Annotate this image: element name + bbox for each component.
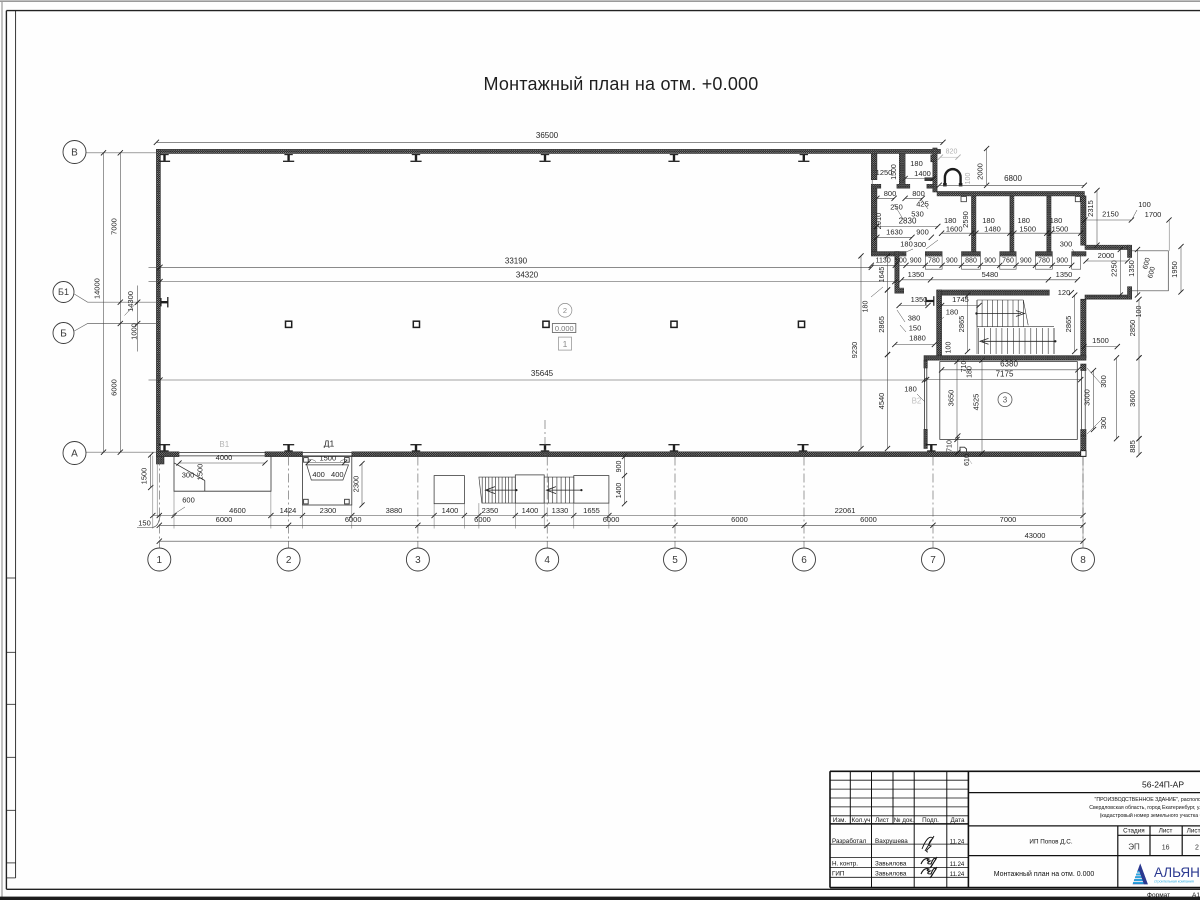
svg-text:1480: 1480 (984, 225, 1001, 234)
svg-text:4600: 4600 (229, 506, 246, 515)
svg-text:6000: 6000 (109, 379, 118, 396)
svg-text:760: 760 (1002, 258, 1014, 265)
svg-text:АЛЬЯНС: АЛЬЯНС (1154, 865, 1200, 880)
svg-text:36500: 36500 (536, 131, 559, 140)
svg-text:Формат: Формат (1147, 892, 1170, 899)
svg-text:1880: 1880 (909, 334, 926, 343)
svg-text:Н. контр.: Н. контр. (832, 861, 858, 868)
svg-text:Листов: Листов (1187, 827, 1200, 834)
svg-text:6800: 6800 (1004, 174, 1022, 183)
svg-text:1630: 1630 (886, 227, 903, 236)
svg-text:1: 1 (563, 339, 568, 349)
svg-text:180: 180 (967, 366, 974, 378)
svg-text:Свердловская область, город Ек: Свердловская область, город Екатеринбург… (1089, 805, 1200, 811)
svg-text:34320: 34320 (516, 271, 539, 280)
svg-text:"ПРОИЗВОДСТВЕННОЕ ЗДАНИЕ", рас: "ПРОИЗВОДСТВЕННОЕ ЗДАНИЕ", расположенное… (1095, 797, 1200, 803)
svg-text:400: 400 (312, 470, 325, 479)
svg-text:7175: 7175 (996, 370, 1014, 379)
svg-text:100: 100 (946, 342, 953, 354)
svg-text:300: 300 (182, 471, 195, 480)
svg-text:ЭП: ЭП (1128, 843, 1140, 852)
svg-text:7: 7 (930, 555, 936, 566)
svg-text:Стадия: Стадия (1123, 827, 1144, 834)
svg-text:300: 300 (1099, 375, 1108, 388)
svg-text:№ док.: № док. (894, 817, 914, 824)
svg-text:2590: 2590 (961, 211, 970, 228)
svg-text:ГИП: ГИП (832, 870, 845, 877)
svg-text:Завьялова: Завьялова (875, 870, 907, 877)
svg-text:600: 600 (182, 496, 195, 505)
svg-text:7000: 7000 (1000, 515, 1017, 524)
svg-text:2000: 2000 (1098, 251, 1115, 260)
svg-text:1: 1 (157, 555, 163, 566)
svg-text:6000: 6000 (345, 515, 362, 524)
svg-text:885: 885 (1128, 440, 1137, 453)
svg-text:180: 180 (900, 240, 913, 249)
svg-text:1350: 1350 (1127, 260, 1136, 277)
svg-text:Лист: Лист (875, 817, 889, 824)
svg-text:300: 300 (914, 240, 927, 249)
svg-text:180: 180 (904, 385, 917, 394)
svg-text:1400: 1400 (914, 169, 931, 178)
svg-text:4: 4 (544, 555, 550, 566)
svg-text:2865: 2865 (1064, 316, 1073, 333)
svg-text:2865: 2865 (957, 316, 966, 333)
svg-text:400: 400 (331, 470, 344, 479)
svg-text:2150: 2150 (1102, 210, 1119, 219)
svg-text:3000: 3000 (1083, 389, 1092, 406)
svg-text:33190: 33190 (505, 257, 528, 266)
svg-text:1500: 1500 (319, 454, 336, 463)
svg-text:380: 380 (908, 314, 921, 323)
svg-text:5: 5 (672, 555, 678, 566)
svg-text:Б: Б (60, 329, 67, 340)
svg-text:7000: 7000 (109, 218, 118, 235)
svg-text:Кол.уч: Кол.уч (852, 817, 871, 824)
svg-text:1130: 1130 (876, 258, 891, 265)
svg-text:2: 2 (563, 306, 567, 315)
svg-text:Вахрушева: Вахрушева (875, 838, 908, 845)
svg-text:1424: 1424 (280, 506, 297, 515)
svg-text:6000: 6000 (474, 515, 491, 524)
svg-text:5480: 5480 (982, 270, 999, 279)
svg-text:3: 3 (1003, 395, 1008, 404)
svg-text:900: 900 (984, 258, 996, 265)
svg-text:22061: 22061 (835, 506, 856, 515)
svg-text:2910: 2910 (874, 213, 883, 230)
svg-text:6000: 6000 (860, 515, 877, 524)
svg-text:780: 780 (928, 258, 940, 265)
svg-text:В: В (71, 148, 78, 159)
svg-text:1500: 1500 (1092, 336, 1109, 345)
svg-text:3650: 3650 (946, 390, 955, 407)
svg-text:880: 880 (965, 258, 977, 265)
svg-text:Б1: Б1 (58, 287, 69, 297)
svg-text:1950: 1950 (1170, 261, 1179, 278)
svg-text:1350: 1350 (1056, 270, 1073, 279)
svg-text:2350: 2350 (482, 506, 499, 515)
svg-text:250: 250 (890, 203, 903, 212)
svg-text:780: 780 (1038, 258, 1050, 265)
svg-text:100: 100 (1136, 306, 1143, 318)
svg-text:1500: 1500 (196, 464, 205, 481)
svg-text:Монтажный план на отм. +0.000: Монтажный план на отм. +0.000 (484, 74, 759, 94)
svg-text:900: 900 (946, 258, 958, 265)
svg-text:2830: 2830 (899, 217, 917, 226)
svg-text:1645: 1645 (879, 267, 886, 283)
svg-text:Завьялова: Завьялова (875, 861, 907, 868)
svg-text:Д1: Д1 (324, 439, 335, 449)
svg-text:14000: 14000 (93, 278, 102, 299)
svg-text:А1: А1 (1192, 892, 1200, 899)
svg-text:11.24: 11.24 (950, 840, 965, 846)
svg-text:Дата: Дата (951, 817, 965, 824)
svg-text:1655: 1655 (583, 506, 600, 515)
svg-text:610: 610 (964, 454, 971, 466)
svg-text:900: 900 (910, 258, 922, 265)
svg-text:4540: 4540 (877, 393, 886, 410)
svg-text:800: 800 (912, 189, 925, 198)
svg-text:Изм.: Изм. (833, 817, 847, 824)
svg-text:2000: 2000 (976, 163, 985, 180)
svg-text:9230: 9230 (850, 342, 859, 359)
svg-text:1500: 1500 (1052, 225, 1069, 234)
svg-text:4000: 4000 (216, 453, 233, 462)
svg-text:100: 100 (1138, 200, 1151, 209)
svg-text:1400: 1400 (522, 506, 539, 515)
svg-text:3880: 3880 (386, 506, 403, 515)
svg-text:2300: 2300 (351, 476, 360, 493)
svg-text:1500: 1500 (891, 164, 898, 180)
svg-text:2300: 2300 (320, 506, 337, 515)
svg-text:120: 120 (1058, 288, 1071, 297)
svg-text:3: 3 (415, 555, 421, 566)
svg-text:Разработал: Разработал (832, 837, 867, 845)
svg-text:35645: 35645 (531, 369, 554, 378)
svg-text:16: 16 (1162, 845, 1170, 852)
svg-text:1350: 1350 (908, 270, 925, 279)
svg-text:2865: 2865 (877, 316, 886, 333)
svg-text:900: 900 (1056, 258, 1068, 265)
svg-text:500: 500 (895, 258, 907, 265)
svg-text:1400: 1400 (616, 483, 623, 499)
svg-text:150: 150 (909, 324, 922, 333)
svg-text:Лист: Лист (1159, 827, 1173, 834)
svg-text:6: 6 (801, 555, 807, 566)
svg-text:900: 900 (616, 461, 623, 473)
svg-text:2250: 2250 (1110, 260, 1119, 277)
svg-text:ИП Попов Д.С.: ИП Попов Д.С. (1029, 839, 1072, 846)
svg-text:180: 180 (910, 159, 923, 168)
svg-text:180: 180 (946, 308, 959, 317)
svg-text:4525: 4525 (971, 394, 980, 411)
svg-text:11.24: 11.24 (950, 872, 965, 878)
svg-text:0.000: 0.000 (555, 324, 574, 333)
svg-text:2: 2 (286, 555, 292, 566)
svg-text:56-24П-АР: 56-24П-АР (1142, 780, 1184, 790)
svg-text:11.24: 11.24 (950, 862, 965, 868)
svg-text:Подп.: Подп. (922, 817, 939, 824)
svg-text:Монтажный план на отм. 0.000: Монтажный план на отм. 0.000 (994, 870, 1095, 878)
svg-text:710: 710 (947, 440, 954, 452)
svg-text:6000: 6000 (216, 515, 233, 524)
svg-text:3600: 3600 (1128, 390, 1137, 407)
svg-text:1700: 1700 (1145, 210, 1162, 219)
svg-text:300: 300 (1060, 240, 1073, 249)
svg-text:2850: 2850 (1128, 320, 1137, 337)
svg-text:1500: 1500 (140, 468, 149, 485)
svg-text:8: 8 (1080, 555, 1086, 566)
svg-text:(кадастровый номер земельного: (кадастровый номер земельного участка 66… (1100, 812, 1200, 819)
svg-text:строительная компания: строительная компания (1154, 880, 1194, 884)
svg-text:820: 820 (946, 149, 958, 156)
svg-text:1350: 1350 (911, 295, 928, 304)
svg-text:В1: В1 (219, 440, 229, 449)
svg-text:1000: 1000 (130, 323, 139, 340)
svg-text:В2: В2 (912, 397, 922, 406)
svg-text:800: 800 (884, 189, 897, 198)
svg-text:180: 180 (863, 301, 870, 313)
svg-text:1500: 1500 (1019, 225, 1036, 234)
svg-text:150: 150 (138, 519, 151, 528)
svg-text:6380: 6380 (1000, 360, 1018, 369)
svg-text:6000: 6000 (731, 515, 748, 524)
svg-text:1330: 1330 (552, 506, 569, 515)
svg-text:2315: 2315 (1086, 200, 1095, 217)
svg-text:6000: 6000 (603, 515, 620, 524)
svg-text:900: 900 (1020, 258, 1032, 265)
svg-text:2: 2 (1195, 845, 1199, 852)
svg-text:300: 300 (1099, 417, 1108, 430)
svg-text:1400: 1400 (442, 506, 459, 515)
svg-text:900: 900 (916, 227, 929, 236)
svg-text:100: 100 (965, 173, 972, 185)
svg-text:43000: 43000 (1025, 531, 1046, 540)
svg-text:А: А (71, 449, 78, 460)
